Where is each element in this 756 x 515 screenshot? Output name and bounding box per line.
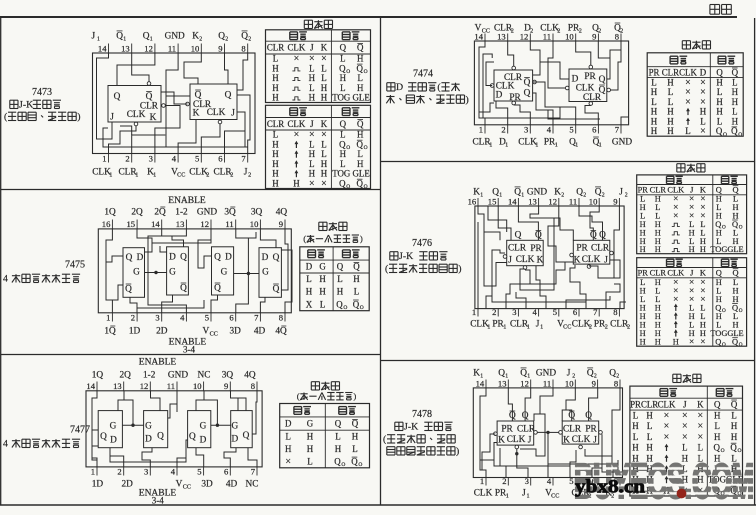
svg-text:O: O bbox=[722, 225, 726, 231]
svg-text:L: L bbox=[306, 274, 311, 284]
svg-text:×: × bbox=[682, 421, 688, 432]
svg-text:H: H bbox=[272, 149, 279, 159]
svg-text:CLR: CLR bbox=[662, 67, 679, 77]
svg-text:H: H bbox=[646, 443, 653, 453]
svg-text:1: 1 bbox=[489, 142, 492, 149]
svg-text:CLK: CLK bbox=[572, 435, 591, 445]
svg-text:4D: 4D bbox=[226, 480, 238, 490]
svg-text:9: 9 bbox=[592, 378, 596, 388]
svg-text:PR: PR bbox=[509, 93, 521, 103]
svg-text:Q: Q bbox=[520, 369, 527, 379]
svg-text:7: 7 bbox=[593, 307, 598, 317]
svg-text:CLK: CLK bbox=[92, 168, 111, 178]
svg-text:CLR: CLR bbox=[641, 399, 658, 409]
svg-text:16: 16 bbox=[468, 197, 477, 207]
svg-text:CLK: CLK bbox=[679, 67, 697, 77]
svg-text:11: 11 bbox=[168, 44, 176, 54]
svg-text:Q: Q bbox=[356, 140, 363, 150]
svg-text:×: × bbox=[697, 432, 703, 443]
svg-text:2: 2 bbox=[501, 125, 505, 135]
svg-text:L: L bbox=[357, 73, 362, 83]
svg-text:14: 14 bbox=[98, 44, 107, 54]
svg-text:10: 10 bbox=[565, 378, 574, 388]
svg-text:J: J bbox=[567, 369, 571, 379]
svg-text:G: G bbox=[133, 268, 140, 278]
svg-text:PR: PR bbox=[585, 425, 597, 435]
svg-text:L: L bbox=[340, 130, 345, 140]
svg-text:Q: Q bbox=[180, 284, 187, 294]
svg-text:×: × bbox=[294, 54, 300, 65]
svg-text:×: × bbox=[673, 295, 678, 305]
svg-text:CC: CC bbox=[177, 172, 185, 179]
svg-text:O: O bbox=[358, 462, 362, 468]
svg-text:TOGGLE: TOGGLE bbox=[710, 245, 743, 254]
svg-text:11: 11 bbox=[543, 378, 551, 388]
svg-text:6: 6 bbox=[592, 125, 597, 135]
svg-text:D: D bbox=[225, 253, 232, 263]
svg-text:11: 11 bbox=[225, 219, 233, 229]
svg-text:(: ( bbox=[4, 112, 7, 123]
svg-text:Q: Q bbox=[732, 67, 739, 77]
svg-text:5: 5 bbox=[569, 476, 573, 486]
svg-text:Q: Q bbox=[340, 43, 347, 53]
svg-text:G: G bbox=[307, 419, 314, 429]
svg-text:Q: Q bbox=[714, 399, 721, 409]
svg-text:1: 1 bbox=[123, 36, 126, 42]
svg-text:1: 1 bbox=[521, 192, 524, 198]
svg-text:Q: Q bbox=[498, 369, 505, 379]
svg-text:13: 13 bbox=[121, 44, 130, 54]
svg-text:H: H bbox=[716, 77, 723, 87]
svg-text:Q: Q bbox=[353, 262, 360, 272]
svg-text:6: 6 bbox=[229, 313, 234, 323]
svg-text:O: O bbox=[341, 462, 345, 468]
svg-text:Q: Q bbox=[576, 188, 583, 198]
svg-text:2: 2 bbox=[492, 307, 496, 317]
svg-text:L: L bbox=[320, 299, 325, 309]
svg-text:7478: 7478 bbox=[412, 409, 432, 420]
svg-text:K: K bbox=[537, 256, 544, 266]
svg-text:J: J bbox=[310, 43, 314, 53]
svg-text:4: 4 bbox=[3, 439, 8, 450]
svg-text:H: H bbox=[337, 287, 344, 297]
svg-text:7: 7 bbox=[251, 467, 256, 477]
svg-text:O: O bbox=[364, 145, 368, 151]
svg-text:Q: Q bbox=[716, 126, 723, 136]
svg-text:O: O bbox=[739, 225, 743, 231]
svg-text:H: H bbox=[272, 83, 279, 93]
svg-text:1: 1 bbox=[503, 324, 506, 331]
svg-text:Q: Q bbox=[731, 126, 738, 136]
svg-text:Q: Q bbox=[143, 32, 150, 42]
svg-text:H: H bbox=[700, 245, 706, 254]
svg-text:7477: 7477 bbox=[70, 425, 90, 436]
svg-text:Q: Q bbox=[337, 262, 344, 272]
svg-text:13: 13 bbox=[528, 197, 537, 207]
svg-text:K: K bbox=[574, 256, 581, 266]
svg-text:CLK: CLK bbox=[288, 119, 306, 129]
svg-text:CLK: CLK bbox=[667, 269, 684, 278]
svg-text:13: 13 bbox=[498, 378, 507, 388]
svg-text:ybx8.cn: ybx8.cn bbox=[575, 477, 645, 498]
svg-text:O: O bbox=[739, 342, 743, 348]
svg-text:PR: PR bbox=[630, 399, 641, 409]
svg-text:7: 7 bbox=[241, 154, 246, 164]
svg-text:CLR: CLR bbox=[591, 244, 610, 254]
svg-text:1: 1 bbox=[527, 324, 530, 331]
svg-text:2: 2 bbox=[511, 28, 514, 35]
svg-text:×: × bbox=[685, 97, 691, 108]
svg-text:H: H bbox=[353, 274, 360, 284]
svg-text:L: L bbox=[337, 274, 342, 284]
svg-text:H: H bbox=[646, 410, 653, 420]
svg-text:5: 5 bbox=[195, 154, 199, 164]
svg-text:11: 11 bbox=[569, 197, 577, 207]
svg-text:4: 4 bbox=[547, 476, 552, 486]
svg-text:H: H bbox=[700, 107, 707, 117]
svg-text:3: 3 bbox=[149, 154, 153, 164]
svg-text:1: 1 bbox=[499, 192, 502, 198]
svg-text:H: H bbox=[651, 126, 658, 136]
svg-text:4: 4 bbox=[180, 313, 185, 323]
svg-text:CLK: CLK bbox=[189, 168, 208, 178]
svg-text:12: 12 bbox=[144, 44, 153, 54]
svg-text:Q: Q bbox=[731, 399, 738, 409]
svg-text:CLK: CLK bbox=[288, 43, 306, 53]
svg-text:14: 14 bbox=[474, 32, 483, 42]
svg-text:5: 5 bbox=[553, 307, 557, 317]
svg-text:H: H bbox=[272, 73, 279, 83]
svg-text:4: 4 bbox=[3, 274, 8, 285]
svg-text:2: 2 bbox=[230, 172, 233, 179]
svg-text:×: × bbox=[697, 421, 703, 432]
svg-text:Q: Q bbox=[126, 253, 133, 263]
svg-text:Q: Q bbox=[352, 419, 359, 429]
svg-text:4Q: 4Q bbox=[244, 371, 256, 381]
svg-text:7: 7 bbox=[615, 125, 620, 135]
svg-text:Q: Q bbox=[587, 369, 594, 379]
svg-text:J: J bbox=[619, 188, 623, 198]
svg-text:3D: 3D bbox=[230, 327, 242, 337]
svg-text:J-K: J-K bbox=[404, 422, 418, 433]
svg-text:2: 2 bbox=[225, 36, 228, 42]
svg-text:L: L bbox=[651, 77, 656, 87]
svg-text:L: L bbox=[682, 443, 687, 453]
svg-text:H: H bbox=[357, 130, 364, 140]
svg-text:H: H bbox=[306, 287, 313, 297]
svg-text:1: 1 bbox=[97, 36, 100, 42]
svg-text:J: J bbox=[593, 436, 597, 446]
svg-text:): ) bbox=[77, 112, 80, 123]
svg-text:Q: Q bbox=[715, 338, 721, 347]
svg-text:CLK: CLK bbox=[667, 186, 684, 195]
svg-text:Q: Q bbox=[189, 432, 196, 442]
svg-text:L: L bbox=[647, 421, 652, 431]
svg-text:Q: Q bbox=[515, 231, 522, 241]
svg-text:H: H bbox=[309, 149, 316, 159]
svg-text:J-K: J-K bbox=[19, 100, 33, 111]
svg-text:2: 2 bbox=[131, 313, 135, 323]
svg-text:Q: Q bbox=[218, 32, 225, 42]
svg-text:PR: PR bbox=[649, 67, 660, 77]
svg-text:×: × bbox=[294, 130, 300, 141]
svg-text:J: J bbox=[110, 113, 114, 123]
svg-text:L: L bbox=[651, 97, 656, 107]
svg-text:D: D bbox=[396, 82, 403, 93]
svg-text:O: O bbox=[738, 132, 742, 138]
svg-text:2: 2 bbox=[589, 324, 592, 331]
svg-text:L: L bbox=[321, 73, 326, 83]
svg-text:9: 9 bbox=[224, 381, 228, 391]
svg-text:K: K bbox=[700, 269, 706, 278]
svg-text:CLK: CLK bbox=[474, 489, 493, 499]
svg-text:Q: Q bbox=[356, 179, 363, 189]
svg-text:10: 10 bbox=[565, 32, 574, 42]
svg-text:J: J bbox=[604, 256, 608, 266]
svg-text:L: L bbox=[340, 54, 345, 64]
svg-text:D: D bbox=[110, 436, 117, 446]
svg-text:H: H bbox=[640, 245, 646, 254]
svg-text:L: L bbox=[633, 432, 638, 442]
svg-text:3Q: 3Q bbox=[224, 208, 236, 218]
svg-text:3: 3 bbox=[525, 476, 529, 486]
svg-text:L: L bbox=[273, 54, 278, 64]
svg-text:6: 6 bbox=[224, 467, 229, 477]
svg-text:8: 8 bbox=[279, 313, 283, 323]
svg-text:7: 7 bbox=[254, 313, 259, 323]
svg-text:4: 4 bbox=[172, 154, 177, 164]
svg-text:×: × bbox=[309, 179, 315, 190]
svg-text:Q: Q bbox=[335, 419, 342, 429]
svg-text:GND: GND bbox=[168, 371, 188, 381]
svg-text:14: 14 bbox=[151, 219, 160, 229]
svg-text:×: × bbox=[700, 126, 706, 137]
svg-text:2: 2 bbox=[620, 28, 623, 35]
svg-text:2: 2 bbox=[206, 172, 209, 179]
svg-text:Q: Q bbox=[732, 338, 738, 347]
svg-text:2: 2 bbox=[125, 154, 129, 164]
svg-text:Q: Q bbox=[125, 285, 132, 295]
svg-text:1: 1 bbox=[505, 142, 508, 149]
svg-text:O: O bbox=[722, 308, 726, 314]
svg-text:2D: 2D bbox=[156, 327, 168, 337]
svg-text:CC: CC bbox=[551, 493, 559, 500]
svg-text:1: 1 bbox=[506, 493, 509, 500]
svg-text:3Q: 3Q bbox=[222, 371, 234, 381]
svg-text:Q: Q bbox=[524, 89, 531, 99]
svg-text:O: O bbox=[346, 184, 350, 190]
svg-text:O: O bbox=[343, 305, 347, 311]
svg-text:1: 1 bbox=[480, 476, 484, 486]
svg-text:Q: Q bbox=[116, 32, 123, 42]
svg-text:K: K bbox=[563, 436, 570, 446]
svg-text:4D: 4D bbox=[254, 327, 266, 337]
svg-text:CC: CC bbox=[183, 484, 191, 491]
svg-text:H: H bbox=[357, 159, 364, 169]
svg-text:1Q: 1Q bbox=[104, 327, 116, 337]
svg-text:G: G bbox=[145, 422, 152, 432]
svg-text:Q: Q bbox=[243, 431, 250, 441]
svg-text:TOG GLE: TOG GLE bbox=[332, 169, 370, 179]
svg-text:L: L bbox=[335, 431, 340, 441]
svg-text:PR: PR bbox=[576, 244, 588, 254]
svg-text:9: 9 bbox=[218, 44, 222, 54]
svg-text:1Q: 1Q bbox=[92, 371, 104, 381]
svg-text:2: 2 bbox=[579, 28, 582, 35]
svg-text:H: H bbox=[667, 126, 674, 136]
svg-text:9: 9 bbox=[592, 32, 596, 42]
svg-text:7476: 7476 bbox=[412, 238, 432, 249]
svg-text:L: L bbox=[321, 149, 326, 159]
svg-text:Q: Q bbox=[214, 284, 221, 294]
svg-text:7473: 7473 bbox=[32, 87, 52, 98]
svg-text:14: 14 bbox=[86, 381, 95, 391]
svg-text:CLK: CLK bbox=[582, 255, 601, 265]
svg-text:11: 11 bbox=[167, 381, 175, 391]
svg-text:G: G bbox=[231, 422, 238, 432]
svg-text:1: 1 bbox=[487, 324, 490, 331]
svg-text:H: H bbox=[731, 421, 738, 431]
svg-text:14: 14 bbox=[508, 197, 517, 207]
svg-text:K: K bbox=[473, 369, 480, 379]
svg-text:L: L bbox=[714, 421, 719, 431]
svg-text:16: 16 bbox=[102, 219, 111, 229]
svg-text:K: K bbox=[498, 436, 505, 446]
svg-text:CLR: CLR bbox=[267, 43, 284, 53]
svg-text:14: 14 bbox=[476, 378, 485, 388]
svg-text:Q: Q bbox=[599, 75, 606, 85]
svg-text:2: 2 bbox=[557, 28, 560, 35]
svg-text:K: K bbox=[321, 119, 328, 129]
svg-text:L: L bbox=[309, 83, 314, 93]
svg-text:9: 9 bbox=[613, 197, 617, 207]
svg-text:H: H bbox=[651, 107, 658, 117]
svg-text:1: 1 bbox=[472, 307, 476, 317]
svg-text:×: × bbox=[664, 410, 670, 421]
svg-text:O: O bbox=[346, 145, 350, 151]
svg-text:Q: Q bbox=[214, 253, 221, 263]
svg-text:H: H bbox=[309, 93, 316, 103]
svg-text:D: D bbox=[700, 67, 707, 77]
svg-text:CC: CC bbox=[210, 331, 218, 338]
svg-text:Q: Q bbox=[339, 63, 346, 73]
svg-text:GND: GND bbox=[612, 138, 632, 148]
svg-text:H: H bbox=[321, 169, 328, 179]
svg-text:3Q: 3Q bbox=[251, 208, 263, 218]
svg-text:L: L bbox=[309, 63, 314, 73]
svg-text:H: H bbox=[335, 444, 342, 454]
svg-text:4: 4 bbox=[547, 125, 552, 135]
svg-text:J: J bbox=[231, 109, 235, 119]
svg-text:L: L bbox=[309, 159, 314, 169]
svg-text:11: 11 bbox=[543, 32, 551, 42]
svg-text:13: 13 bbox=[113, 381, 122, 391]
svg-text:H: H bbox=[293, 179, 300, 189]
svg-text:CLK: CLK bbox=[518, 138, 537, 148]
svg-text:Q: Q bbox=[100, 432, 107, 442]
svg-text:CLK: CLK bbox=[470, 320, 489, 330]
svg-text:1: 1 bbox=[540, 324, 543, 331]
svg-text:PR: PR bbox=[638, 186, 649, 195]
svg-text:Q: Q bbox=[732, 269, 738, 278]
svg-text:1: 1 bbox=[535, 142, 538, 149]
svg-text:CLR: CLR bbox=[517, 425, 536, 435]
svg-text:H: H bbox=[667, 107, 674, 117]
svg-text:H: H bbox=[319, 274, 326, 284]
svg-text:1: 1 bbox=[555, 142, 558, 149]
svg-text:2: 2 bbox=[627, 324, 630, 331]
svg-text:8: 8 bbox=[615, 32, 619, 42]
svg-text:Q: Q bbox=[273, 253, 280, 263]
svg-text:L: L bbox=[698, 443, 703, 453]
svg-text:O: O bbox=[722, 342, 726, 348]
svg-text:10: 10 bbox=[191, 44, 200, 54]
svg-text:2: 2 bbox=[502, 476, 506, 486]
svg-text:H: H bbox=[321, 159, 328, 169]
svg-text:L: L bbox=[309, 140, 314, 150]
svg-text:L: L bbox=[668, 97, 673, 107]
svg-text:CLK: CLK bbox=[658, 399, 676, 409]
svg-text:2: 2 bbox=[248, 172, 251, 179]
svg-text:Q: Q bbox=[732, 186, 738, 195]
svg-text:J: J bbox=[536, 320, 540, 330]
svg-text:Q: Q bbox=[114, 92, 121, 102]
svg-text:H: H bbox=[307, 444, 314, 454]
svg-text:X: X bbox=[306, 299, 313, 309]
svg-text:): ) bbox=[458, 264, 461, 275]
svg-text:2: 2 bbox=[605, 324, 608, 331]
svg-text:L: L bbox=[633, 410, 638, 420]
svg-text:2: 2 bbox=[602, 192, 605, 198]
svg-text:J: J bbox=[683, 399, 687, 409]
svg-text:D: D bbox=[306, 262, 313, 272]
svg-text:G: G bbox=[262, 268, 269, 278]
svg-text:TOG GLE: TOG GLE bbox=[332, 93, 370, 103]
svg-text:×: × bbox=[321, 179, 327, 190]
svg-text:10: 10 bbox=[250, 219, 259, 229]
svg-text:(: ( bbox=[385, 264, 388, 275]
svg-text:H: H bbox=[321, 93, 328, 103]
svg-text:2: 2 bbox=[530, 28, 533, 35]
svg-text:15: 15 bbox=[488, 197, 497, 207]
svg-text:G: G bbox=[169, 268, 176, 278]
svg-text:15: 15 bbox=[127, 219, 136, 229]
svg-text:1Q: 1Q bbox=[104, 208, 116, 218]
svg-text:PR: PR bbox=[584, 72, 596, 82]
svg-text:7474: 7474 bbox=[413, 69, 433, 80]
svg-text:5: 5 bbox=[205, 313, 209, 323]
svg-text:D: D bbox=[496, 91, 503, 101]
svg-text:2: 2 bbox=[248, 36, 251, 42]
svg-text:H: H bbox=[732, 87, 739, 97]
svg-text:CLR: CLR bbox=[563, 425, 582, 435]
svg-text:4: 4 bbox=[171, 467, 176, 477]
svg-text:L: L bbox=[357, 149, 362, 159]
svg-text:Q: Q bbox=[713, 443, 720, 453]
svg-text:Q: Q bbox=[357, 43, 364, 53]
svg-text:1: 1 bbox=[91, 467, 95, 477]
svg-text:1: 1 bbox=[150, 36, 153, 42]
svg-text:O: O bbox=[738, 448, 742, 454]
svg-text:K: K bbox=[700, 186, 706, 195]
svg-text:CLR: CLR bbox=[508, 244, 527, 254]
svg-text:Q: Q bbox=[524, 78, 531, 88]
svg-text:CLK: CLK bbox=[507, 435, 526, 445]
svg-text:H: H bbox=[673, 338, 679, 347]
svg-text:H: H bbox=[272, 169, 279, 179]
svg-text:CLR: CLR bbox=[650, 269, 667, 278]
svg-text:×: × bbox=[285, 456, 291, 467]
